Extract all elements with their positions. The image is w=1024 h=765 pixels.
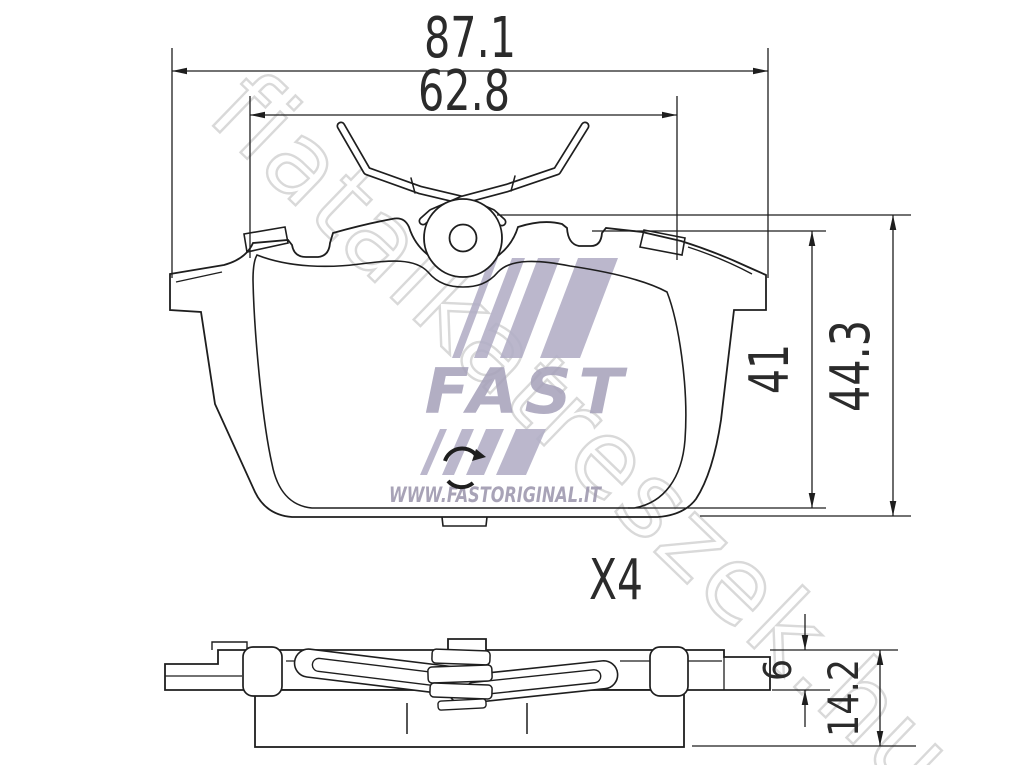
dim-overall-height-text: 44.3 <box>819 320 882 412</box>
side-clip-right <box>650 647 688 696</box>
fast-logo-url: WWW.FASTORIGINAL.IT <box>389 483 602 507</box>
dim-inner-width-text: 62.8 <box>418 59 510 124</box>
fast-logo-text: FAST <box>425 355 630 428</box>
dim-total-thickness-text: 14.2 <box>819 659 868 737</box>
right-shoulder-line <box>688 247 752 274</box>
center-boss-hole <box>450 225 477 252</box>
parts-drawing-page: fiatalkatreszek.hu FAST WWW.FASTORIGINAL… <box>0 0 1024 765</box>
bottom-tab <box>442 517 487 526</box>
dim-plate-thickness-text: 6 <box>756 659 800 681</box>
left-shoulder-line <box>176 272 222 282</box>
technical-drawing: fiatalkatreszek.hu FAST WWW.FASTORIGINAL… <box>0 0 1024 765</box>
fast-logo-slashes-bottom <box>420 429 546 475</box>
quantity-label: X4 <box>589 548 643 613</box>
side-plate-step <box>212 642 247 650</box>
side-view <box>165 639 770 747</box>
side-clip-left <box>243 647 282 696</box>
dim-pad-height-text: 41 <box>738 344 801 394</box>
